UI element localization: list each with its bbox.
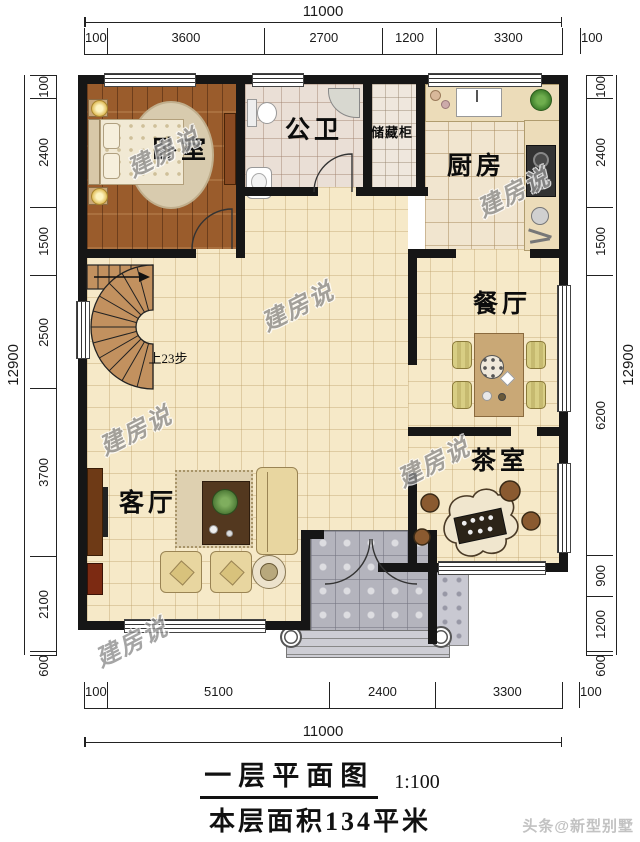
- bathroom-door: [314, 154, 352, 192]
- dim-segment: 2400: [30, 98, 56, 207]
- plan-area: 卧室 公卫 储藏柜 厨房 餐厅 茶室 客厅 上23步 建房说 建房说 建房说 建…: [78, 75, 568, 655]
- title-block: 一层平面图 1:100: [0, 754, 640, 799]
- dim-segment: 1500: [30, 207, 56, 275]
- dim-segment: 600: [30, 651, 56, 679]
- dim-right-segments: 1002400150062009001200600: [586, 75, 613, 656]
- dim-segment: 3600: [107, 28, 264, 54]
- dim-segment: 100: [84, 28, 107, 54]
- credit-watermark: 头条@新型别墅: [522, 815, 634, 836]
- dim-segment: 2100: [30, 556, 56, 651]
- dim-bottom-total: 11000: [84, 714, 562, 743]
- dim-left-total: 12900: [2, 75, 25, 655]
- dim-segment: 5100: [107, 682, 330, 708]
- dim-segment: 1200: [382, 28, 435, 54]
- label-living: 客厅: [108, 490, 188, 518]
- label-storage: 储藏柜: [364, 126, 420, 140]
- tea-stool: [500, 481, 520, 501]
- plan-scale: 1:100: [394, 771, 440, 799]
- dim-right-total: 12900: [616, 75, 639, 655]
- label-bathroom: 公卫: [272, 117, 356, 145]
- label-stair-note: 上23步: [140, 352, 196, 366]
- dim-segment: 100: [587, 75, 613, 98]
- dim-segment: 3700: [30, 388, 56, 555]
- dim-segment: 2400: [587, 98, 613, 207]
- tea-stool: [414, 529, 430, 545]
- tea-stool: [421, 494, 439, 512]
- dim-segment: 2400: [329, 682, 434, 708]
- plan-title: 一层平面图: [200, 754, 378, 799]
- dim-top-total: 11000: [84, 4, 562, 23]
- dim-segment: 1200: [587, 596, 613, 651]
- dim-top-segments: 1003600270012003300100: [84, 28, 563, 55]
- floor-plan-page: 11000 1003600270012003300100 12900 10024…: [0, 0, 640, 842]
- tea-stool: [522, 512, 540, 530]
- dim-segment: 2500: [30, 275, 56, 388]
- bedroom-door: [192, 209, 232, 249]
- dim-segment: 600: [587, 651, 613, 679]
- dim-segment: 6200: [587, 275, 613, 555]
- dim-segment: 2700: [264, 28, 382, 54]
- dim-left-segments: 10024001500250037002100600: [30, 75, 57, 656]
- dim-segment: 3300: [436, 28, 580, 54]
- label-dining: 餐厅: [458, 291, 546, 319]
- dim-segment: 900: [587, 555, 613, 596]
- dim-segment: 3300: [435, 682, 579, 708]
- dim-segment: 100: [580, 28, 603, 54]
- dim-segment: 100: [84, 682, 107, 708]
- dim-segment: 1500: [587, 207, 613, 275]
- dim-bottom-segments: 100510024003300100: [84, 682, 563, 709]
- dim-segment: 100: [30, 75, 56, 98]
- entry-double-door: [325, 539, 417, 584]
- dim-segment: 100: [579, 682, 602, 708]
